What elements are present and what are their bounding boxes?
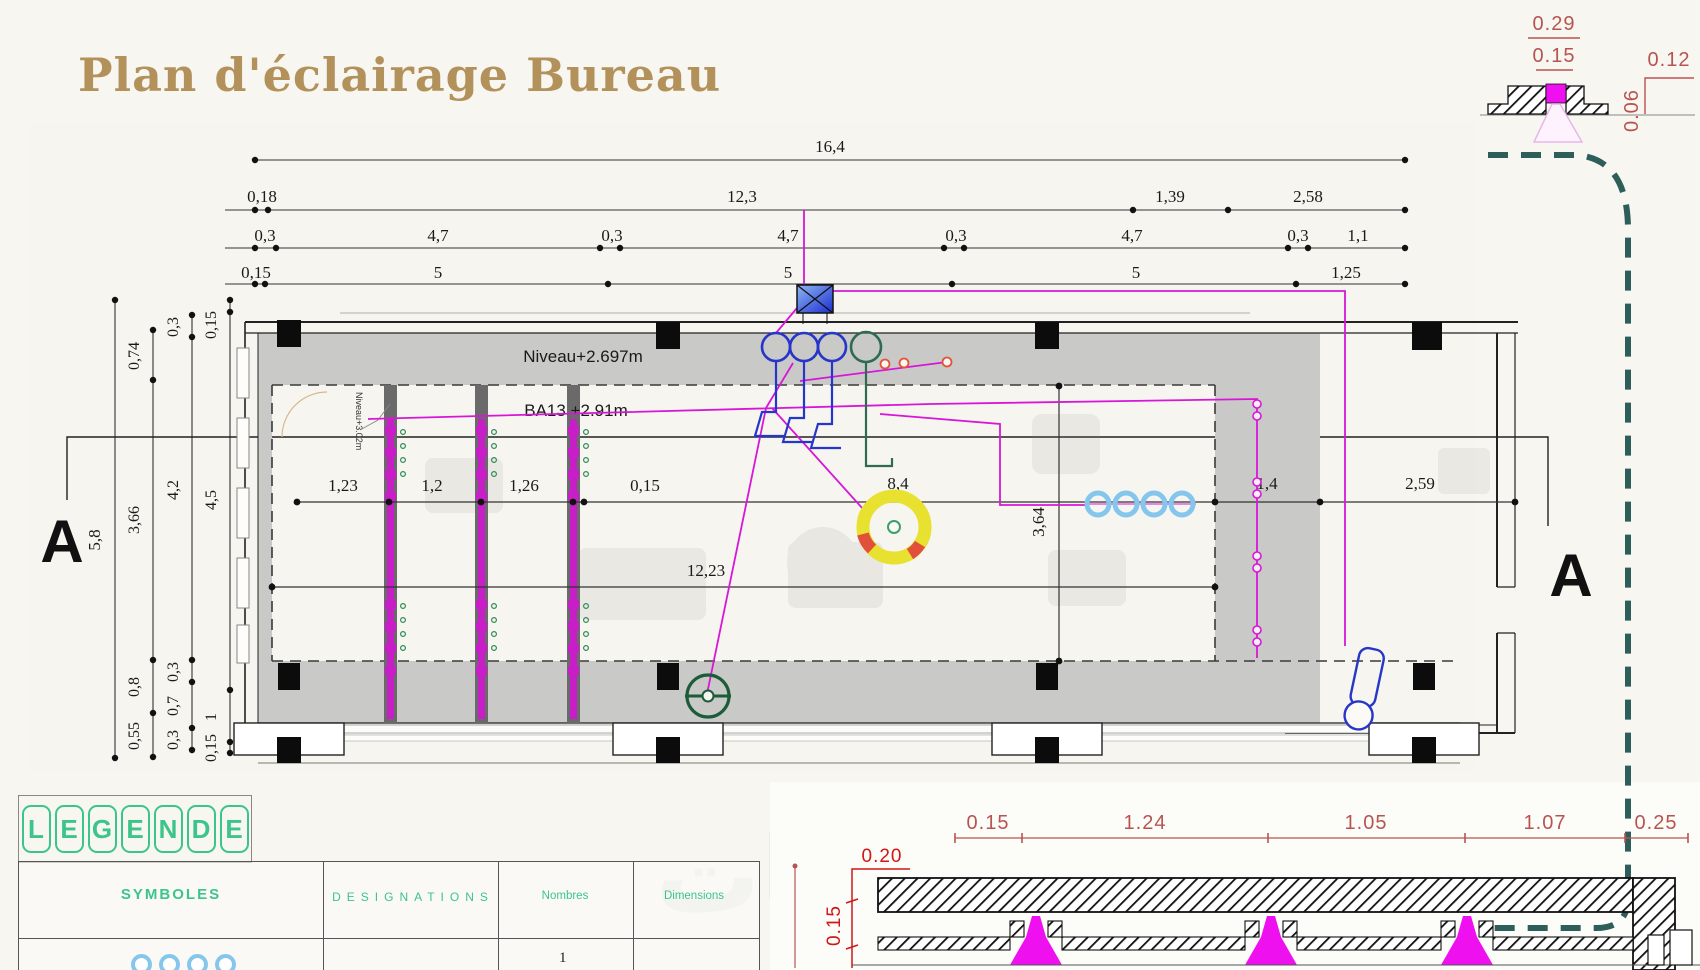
detail-dim: 0.29 — [1533, 13, 1576, 35]
dim-label: 1,26 — [509, 476, 539, 495]
downlight-ring-icon — [159, 954, 180, 970]
downlight-ring-icon — [187, 954, 208, 970]
detail-dim: 1.05 — [1345, 812, 1388, 834]
dim-label: 4,5 — [203, 490, 220, 510]
ba13-label: BA13 +2.91m — [524, 401, 628, 420]
legend-letter: L — [22, 805, 51, 853]
dim-label: 2,59 — [1405, 474, 1435, 493]
dim-label: 0,15 — [241, 263, 271, 282]
dim-label: 3,66 — [126, 506, 143, 534]
dim-label: 1,39 — [1155, 187, 1185, 206]
legend-letter: N — [154, 805, 183, 853]
dim-label: 0,3 — [165, 662, 182, 682]
dim-label: 0,15 — [203, 734, 220, 762]
detail-dim: 0.12 — [1648, 49, 1691, 71]
detail-spot-section: 0.29 0.15 0.12 0.06 — [1480, 13, 1695, 142]
dim-label: 0,3 — [1287, 226, 1308, 245]
detail-dim: 0.06 — [1621, 89, 1643, 132]
dim-label: 0,55 — [126, 722, 143, 750]
legend-row-count: 1 — [559, 950, 567, 967]
legend-letter: G — [88, 805, 117, 853]
legend: L E G E N D E SYMBOLES DESIGNATIONS Nomb… — [18, 795, 760, 970]
detail-dim: 0.15 — [967, 812, 1010, 834]
dim-label: 1,2 — [421, 476, 442, 495]
legend-title: L E G E N D E — [18, 795, 252, 863]
dim-label: 0,15 — [203, 311, 220, 339]
legend-row-symbol-downlights — [131, 954, 236, 970]
dim-label: 0,18 — [247, 187, 277, 206]
legend-header-dimensions: Dimensions — [664, 890, 724, 902]
detail-dim: 0.20 — [862, 846, 903, 867]
dim-label: 0,3 — [165, 317, 182, 337]
dim-label: 2,58 — [1293, 187, 1323, 206]
dim-label: 0,3 — [254, 226, 275, 245]
section-marker-right: A — [1549, 542, 1592, 609]
legend-letter: E — [121, 805, 150, 853]
dim-label: 0,3 — [165, 730, 182, 750]
dim-label: 4,7 — [427, 226, 449, 245]
legend-header-nombres: Nombres — [542, 890, 589, 902]
detail-dim: 0.15 — [1533, 45, 1576, 67]
dim-label: 1,1 — [1347, 226, 1368, 245]
dim-label: 0,74 — [126, 342, 143, 370]
dim-label: 0,3 — [601, 226, 622, 245]
section-marker-left: A — [40, 508, 83, 575]
lighting-plan-sheet: Plan d'éclairage Bureau خطبات — [0, 0, 1700, 970]
dim-label: 4,2 — [165, 480, 182, 500]
dim-label: 3,64 — [1029, 507, 1048, 537]
dim-label: 12,23 — [687, 561, 725, 580]
dim-label: 1 — [203, 713, 220, 721]
dim-label: 5 — [434, 263, 443, 282]
dim-label: 0,8 — [126, 677, 143, 697]
legend-letter: D — [187, 805, 216, 853]
detail-dim: 0.25 — [1635, 812, 1678, 834]
dim-label: 1,23 — [328, 476, 358, 495]
dim-label: 0,3 — [945, 226, 966, 245]
dim-label: 4,7 — [777, 226, 799, 245]
dim-label: 4,7 — [1121, 226, 1143, 245]
dim-total-width: 16,4 — [815, 137, 845, 156]
detail-dim: 1.07 — [1524, 812, 1567, 834]
dim-label: 1,25 — [1331, 263, 1361, 282]
dim-label: 0,7 — [165, 696, 182, 716]
dim-total-height: 5,8 — [85, 529, 104, 550]
dim-label: 12,3 — [727, 187, 757, 206]
legend-table: SYMBOLES DESIGNATIONS Nombres Dimensions… — [18, 861, 760, 970]
detail-dim: 0.15 — [824, 905, 845, 946]
ceiling-level-label: Niveau+2.697m — [523, 347, 643, 366]
downlight-ring-icon — [131, 954, 152, 970]
wall-level-label: Niveau+3.02m — [354, 392, 364, 450]
legend-letter: E — [55, 805, 84, 853]
downlight-ring-icon — [215, 954, 236, 970]
legend-letter: E — [220, 805, 249, 853]
dim-label: 5 — [1132, 263, 1141, 282]
legend-header-symboles: SYMBOLES — [121, 886, 221, 903]
dim-label: 5 — [784, 263, 793, 282]
legend-header-designations: DESIGNATIONS — [332, 890, 494, 904]
dim-label: 0,15 — [630, 476, 660, 495]
detail-dim: 1.24 — [1124, 812, 1167, 834]
